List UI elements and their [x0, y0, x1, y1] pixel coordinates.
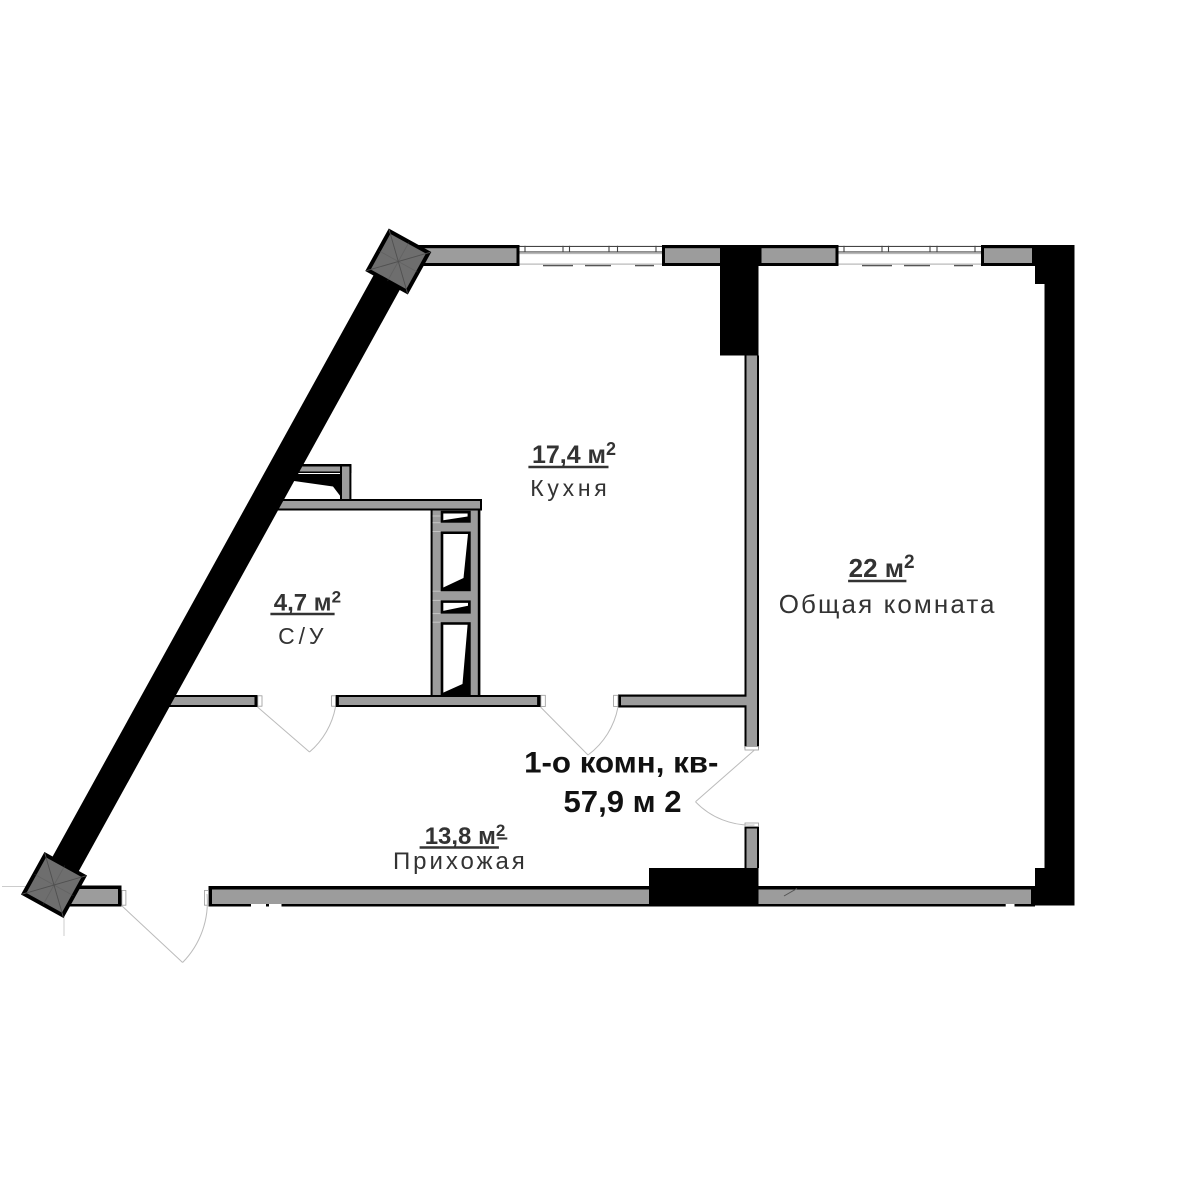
svg-text:Общая комната: Общая комната — [779, 589, 995, 619]
svg-text:4,7 м2: 4,7 м2 — [274, 588, 341, 617]
svg-text:17,4 м2: 17,4 м2 — [532, 439, 616, 469]
svg-text:1-о комн, кв-: 1-о комн, кв- — [524, 747, 718, 780]
svg-text:57,9 м 2: 57,9 м 2 — [564, 784, 682, 819]
svg-text:С/У: С/У — [278, 623, 324, 649]
svg-text:Кухня: Кухня — [530, 475, 606, 501]
svg-text:13,8 м2: 13,8 м2 — [425, 821, 506, 850]
